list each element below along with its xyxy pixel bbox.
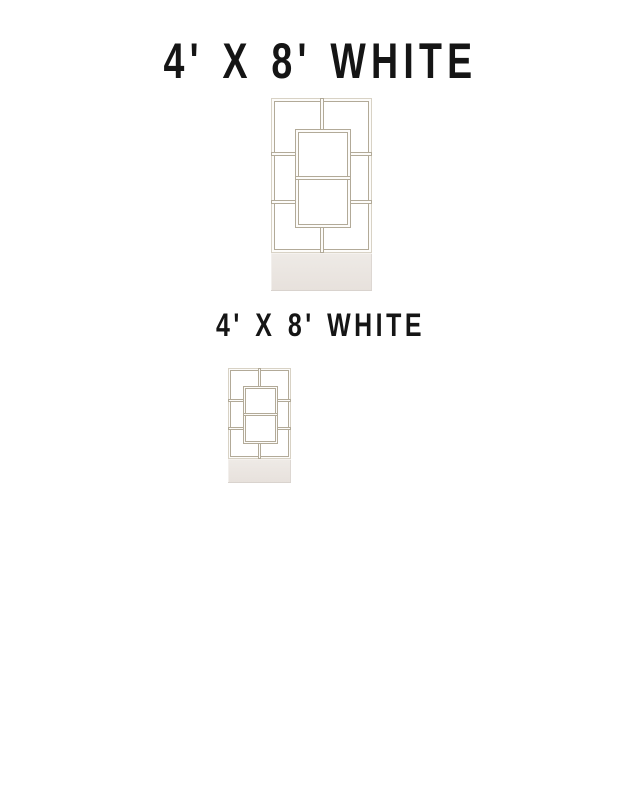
divider-center-post-bottom [320, 226, 324, 253]
planter-box-base [271, 252, 372, 291]
divider-inner-shelf [243, 413, 278, 416]
divider-crossbar-left-lower [271, 200, 297, 204]
divider-crossbar-right-upper [276, 399, 291, 402]
divider-crossbar-right-lower [276, 427, 291, 430]
product-listing-page: 4' X 8' WHITE 4' X 8' WHITE [0, 0, 641, 811]
product-title-secondary[interactable]: 4' X 8' WHITE [71, 309, 571, 341]
divider-crossbar-right-upper [349, 152, 372, 156]
divider-crossbar-right-lower [349, 200, 372, 204]
product-image-secondary[interactable] [228, 368, 291, 483]
divider-openwork [271, 98, 372, 253]
divider-center-post-top [258, 368, 261, 388]
divider-openwork [228, 368, 291, 459]
planter-box-base [228, 458, 291, 483]
divider-center-post-top [320, 98, 324, 131]
divider-center-post-bottom [258, 442, 261, 459]
divider-crossbar-left-upper [271, 152, 297, 156]
divider-inner-shelf [295, 176, 351, 180]
product-title-primary: 4' X 8' WHITE [80, 36, 561, 86]
product-image-primary[interactable] [271, 98, 372, 291]
